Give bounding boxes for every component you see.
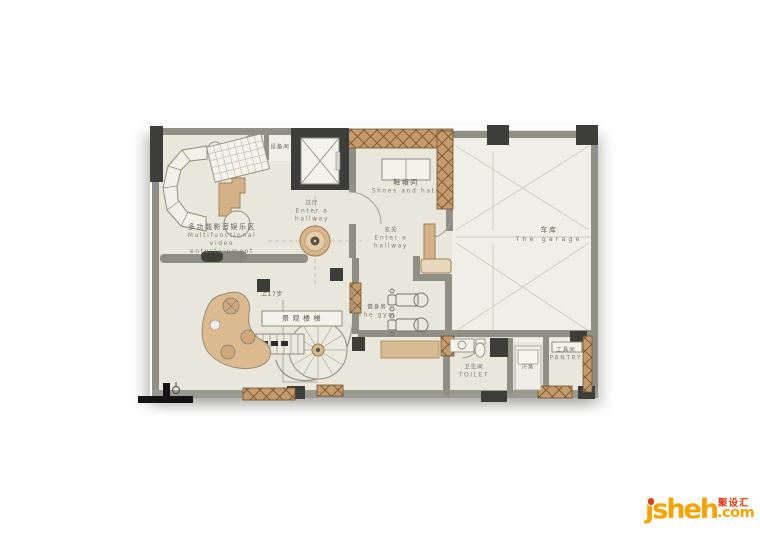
- shoe-cabinet: [382, 159, 430, 180]
- gym-mat: [381, 341, 439, 358]
- stairs-label-box: [262, 311, 342, 326]
- elevator: [291, 128, 349, 190]
- equipment-room: [269, 135, 291, 161]
- jsheh-watermark: jsheh 聚设汇 .com: [645, 492, 760, 534]
- round-ottoman: [224, 211, 250, 237]
- logo-tld-text: .com: [717, 505, 754, 521]
- sauna-bench: [515, 346, 541, 390]
- entrance-cabinet: [424, 224, 435, 262]
- floor-plan-svg: [0, 0, 760, 537]
- hall-round-table: [300, 226, 330, 256]
- floor-plan-page: 设备间 多功能影音娱乐区 Multifunctional video enter…: [0, 0, 760, 537]
- entrance-bench: [421, 259, 451, 273]
- logo-brand-text: jsheh: [645, 492, 717, 528]
- tv-cabinet: [201, 251, 247, 262]
- logo-red-dot-icon: [648, 498, 655, 505]
- pantry-cabinet: [552, 342, 582, 352]
